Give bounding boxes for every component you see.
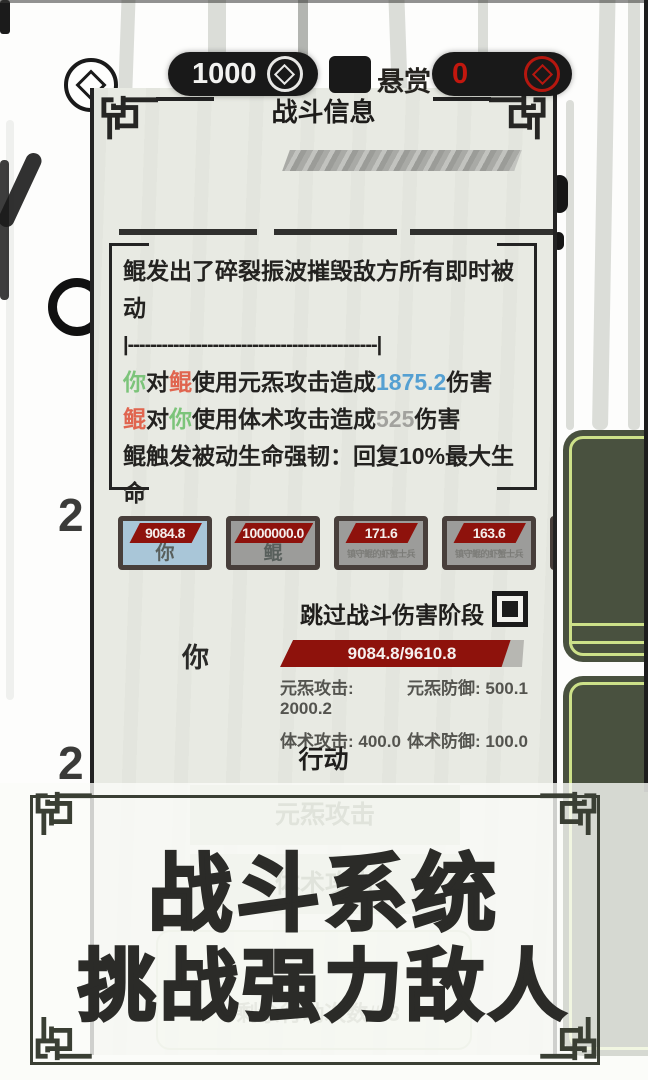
hp-banner: 9084.8: [128, 523, 202, 543]
divider-bar: [410, 229, 553, 235]
hp-banner: 171.6: [344, 523, 418, 543]
bounty-label: 悬赏: [377, 60, 431, 99]
combatant-card-you[interactable]: 9084.8 你: [118, 516, 212, 570]
combatant-card-row: 9084.8 你 1000000.0 鲲 171.6 镇守鲲的虾蟹士兵 163.…: [118, 516, 553, 576]
combatant-card-soldier1[interactable]: 171.6 镇守鲲的虾蟹士兵: [334, 516, 428, 570]
bounty-value: 0: [452, 58, 468, 91]
combatant-card-soldier2[interactable]: 163.6 镇守鲲的虾蟹士兵: [442, 516, 536, 570]
corner-ornament-icon: [34, 790, 92, 836]
hp-banner: 1000000.0: [233, 523, 314, 543]
player-name: 你: [182, 636, 222, 675]
combatant-name: 镇守鲲的虾蟹士兵: [447, 543, 531, 565]
hp-banner: 163.6: [452, 523, 526, 543]
divider-bar: [119, 229, 257, 235]
combatant-name: 你: [123, 543, 207, 565]
combatant-card-partial[interactable]: [550, 516, 553, 570]
combatant-name: 鲲: [231, 543, 315, 565]
skip-damage-label: 跳过战斗伤害阶段: [244, 596, 484, 630]
stat-qi-defense: 元炁防御: 500.1: [407, 674, 530, 719]
background-number: 2: [58, 488, 84, 542]
right-edge-strip: [644, 0, 648, 792]
side-menu-button[interactable]: [563, 430, 648, 662]
divider-bar: [274, 229, 397, 235]
battle-log-text: 鲲发出了碎裂振波摧毁敌方所有即时被动 |--------------------…: [123, 253, 525, 512]
log-line-passive: 鲲触发被动生命强韧：回复10%最大生命: [123, 438, 525, 512]
currency-pill[interactable]: 1000: [168, 52, 318, 96]
log-separator: |---------------------------------------…: [123, 327, 525, 364]
background-number: 2: [58, 736, 84, 790]
bounty-coin-icon: [524, 56, 560, 92]
log-line-attack2: 鲲对你使用体术攻击造成525伤害: [123, 401, 525, 438]
top-edge-line: [0, 0, 648, 3]
combatant-name: 镇守鲲的虾蟹士兵: [339, 543, 423, 565]
scroll-decoration: [282, 150, 522, 171]
dialog-title: 战斗信息: [94, 92, 553, 129]
player-hp-text: 9084.8/9610.8: [280, 640, 524, 667]
bounty-icon[interactable]: [329, 56, 371, 93]
skip-damage-checkbox[interactable]: [492, 591, 528, 627]
action-title: 行动: [94, 740, 553, 776]
log-line-attack1: 你对鲲使用元炁攻击造成1875.2伤害: [123, 364, 525, 401]
player-hp-bar: 9084.8/9610.8: [280, 640, 524, 667]
tutorial-title-line1: 战斗系统: [0, 846, 648, 942]
bounty-pill[interactable]: 0: [432, 52, 572, 96]
game-screen: 1000 悬赏 0 2 2 战斗信息 鲲发出了碎裂振波摧毁敌方: [0, 0, 648, 1080]
tutorial-title-line2: 挑战强力敌人: [0, 938, 648, 1034]
coin-icon: [267, 56, 303, 92]
combatant-card-kun[interactable]: 1000000.0 鲲: [226, 516, 320, 570]
log-line-skill: 鲲发出了碎裂振波摧毁敌方所有即时被动: [123, 253, 525, 327]
corner-ornament-icon: [540, 790, 598, 836]
stat-qi-attack: 元炁攻击: 2000.2: [280, 674, 407, 719]
checkbox-check: [502, 601, 518, 617]
currency-value: 1000: [192, 58, 257, 91]
battle-log-box: 鲲发出了碎裂振波摧毁敌方所有即时被动 |--------------------…: [109, 243, 537, 490]
